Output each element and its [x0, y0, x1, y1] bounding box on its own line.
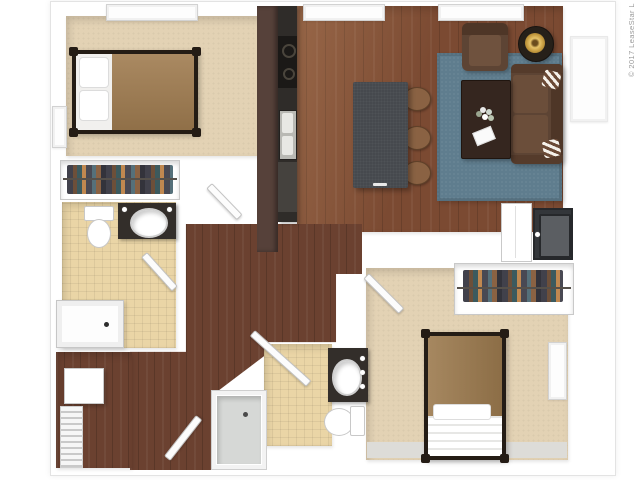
shower-floor — [217, 396, 261, 464]
armchair — [462, 23, 508, 71]
watermark-text: © 2017 LeaseStar L — [627, 3, 636, 77]
toilet-2 — [324, 406, 364, 436]
utility-cabinet — [501, 203, 532, 262]
magazine-icon — [472, 126, 496, 146]
bed-post — [69, 128, 78, 137]
washer-door — [539, 214, 571, 258]
cabinet-divider — [515, 206, 516, 258]
dishwasher — [278, 162, 297, 212]
living-room-window-right — [438, 4, 524, 21]
shower-stall — [211, 390, 267, 470]
washer-dryer — [533, 208, 573, 260]
pillow — [79, 57, 109, 88]
sofa — [511, 64, 563, 164]
kitchen-sink — [279, 110, 297, 160]
stove-burner-icon — [282, 44, 296, 58]
bedroom-2-window — [548, 342, 567, 400]
bathroom-2-floor — [264, 344, 332, 446]
clothes-rod — [457, 287, 571, 289]
living-room-side-panel — [570, 36, 608, 122]
flower-vase-icon — [480, 107, 486, 113]
striped-pillow — [541, 138, 561, 158]
shower-drain-icon — [243, 412, 248, 417]
side-table — [518, 26, 554, 62]
bed-post — [500, 454, 509, 463]
living-room-window-left — [303, 4, 385, 21]
bed-1-pillow-area — [76, 54, 112, 130]
bedroom-1-window — [106, 4, 198, 21]
bathtub — [56, 300, 124, 348]
faucet-knob — [360, 370, 365, 375]
wire-shelving — [60, 406, 83, 468]
faucet-knob — [360, 356, 365, 361]
bed-post — [192, 128, 201, 137]
pillow — [433, 404, 491, 420]
bathroom-1-vanity — [118, 203, 176, 239]
toilet-1 — [84, 206, 112, 248]
armchair-back — [462, 23, 508, 35]
sink-basin — [282, 136, 293, 155]
kitchen-island-table — [353, 82, 408, 188]
armchair-cushion — [469, 35, 501, 66]
faucet-knob — [167, 207, 172, 212]
toilet-bowl — [87, 219, 111, 248]
faucet-knob — [360, 384, 365, 389]
bed-post — [421, 454, 430, 463]
toilet-tank — [350, 406, 365, 436]
bathroom-sink — [130, 208, 168, 238]
clothes-rod — [63, 178, 177, 180]
stove-cooktop — [278, 36, 297, 88]
closet-2 — [454, 263, 574, 315]
copyright-watermark: © 2017 LeaseStar L — [627, 0, 639, 80]
gold-bowl-icon — [525, 33, 545, 53]
bed-post — [69, 47, 78, 56]
bed-post — [500, 329, 509, 338]
washer-handle — [535, 232, 540, 237]
bathroom-sink — [332, 359, 362, 396]
bathroom-2-vanity — [328, 348, 368, 402]
laundry-machine — [64, 368, 104, 404]
kitchen-counter — [278, 6, 297, 222]
faucet-knob — [122, 207, 127, 212]
closet-1 — [60, 160, 180, 200]
coffee-table — [461, 80, 511, 159]
floor-plan-image: © 2017 LeaseStar L — [0, 0, 640, 480]
island-handle — [373, 183, 387, 186]
stove-burner-icon — [283, 68, 295, 80]
tub-faucet-icon — [104, 322, 109, 327]
bedroom-1-side-window — [52, 106, 67, 148]
sink-basin — [282, 113, 293, 133]
kitchen-cabinet-run — [257, 6, 278, 252]
pillow — [79, 90, 109, 121]
bed-2 — [424, 332, 506, 460]
bed-1 — [72, 50, 198, 134]
bed-post — [192, 47, 201, 56]
bed-post — [421, 329, 430, 338]
bed-2-linen-area — [428, 416, 502, 456]
